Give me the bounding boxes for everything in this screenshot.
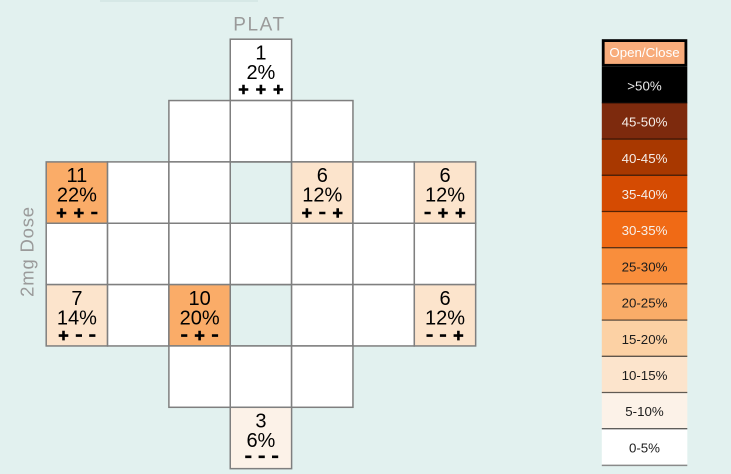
svg-text:25-30%: 25-30% — [622, 259, 668, 274]
svg-text:5-10%: 5-10% — [625, 404, 664, 419]
svg-text:30-35%: 30-35% — [622, 223, 668, 238]
svg-text:Open/Close: Open/Close — [609, 45, 679, 60]
svg-text:2mg Dose: 2mg Dose — [17, 206, 38, 297]
svg-text:PLAT: PLAT — [233, 15, 286, 36]
svg-text:14%: 14% — [57, 307, 97, 329]
svg-text:35-40%: 35-40% — [622, 187, 668, 202]
svg-text:2%: 2% — [246, 62, 275, 84]
svg-text:>50%: >50% — [627, 78, 662, 93]
svg-text:12%: 12% — [425, 185, 465, 207]
svg-text:0-5%: 0-5% — [629, 440, 660, 455]
svg-text:45-50%: 45-50% — [622, 115, 668, 130]
svg-text:12%: 12% — [425, 307, 465, 329]
svg-text:22%: 22% — [57, 185, 97, 207]
svg-text:40-45%: 40-45% — [622, 151, 668, 166]
svg-text:12%: 12% — [302, 185, 342, 207]
svg-text:15-20%: 15-20% — [622, 332, 668, 347]
svg-text:20-25%: 20-25% — [622, 296, 668, 311]
svg-text:20%: 20% — [180, 307, 220, 329]
svg-text:10-15%: 10-15% — [622, 368, 668, 383]
svg-text:6%: 6% — [246, 430, 275, 452]
